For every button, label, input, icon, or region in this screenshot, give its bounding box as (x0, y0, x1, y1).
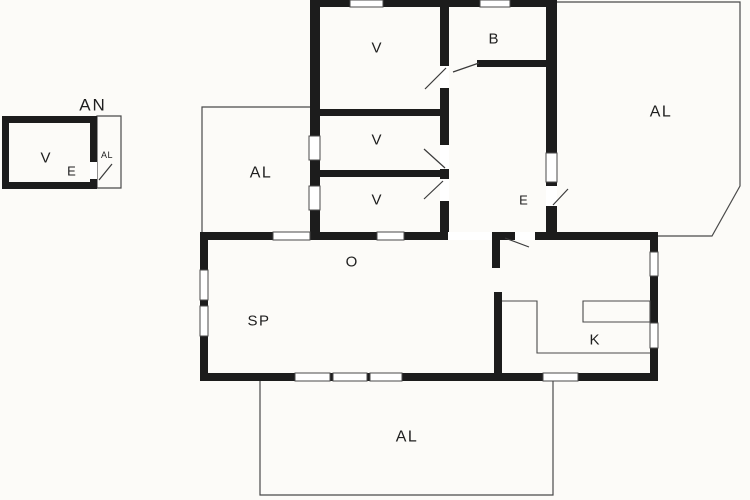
wall-segment (310, 170, 449, 177)
wall-segment (310, 0, 557, 7)
wall-segment (440, 0, 449, 240)
wall-segment (310, 109, 449, 116)
window (350, 0, 383, 7)
window (309, 186, 320, 210)
room-label-bathroom: B (488, 31, 499, 48)
window (273, 232, 310, 240)
window (650, 323, 658, 348)
door-gap (515, 232, 535, 240)
window (295, 373, 330, 381)
window (309, 136, 320, 160)
room-label-living-room-o: O (346, 254, 359, 271)
room-label-annex-entry-e: E (67, 164, 77, 179)
window (370, 373, 402, 381)
room-label-terrace-south: AL (396, 429, 419, 446)
window (200, 270, 208, 300)
floor-plan-page: ANVEALVBALVVALEOSPKAL (0, 0, 750, 500)
room-label-bedroom-3: V (371, 192, 382, 209)
window (480, 0, 510, 7)
room-label-entrance: E (519, 193, 529, 208)
plan-background (0, 0, 750, 500)
wall-segment (494, 292, 502, 377)
window (333, 373, 367, 381)
wall-segment (2, 116, 97, 123)
room-label-annex-title: AN (79, 96, 107, 115)
window (546, 153, 557, 182)
wall-segment (2, 182, 97, 189)
room-label-annex-room-v: V (40, 150, 51, 167)
window (650, 252, 658, 276)
floor-plan-canvas: ANVEALVBALVVALEOSPKAL (0, 0, 750, 500)
window (543, 373, 578, 381)
room-label-bedroom-2: V (371, 132, 382, 149)
room-label-terrace-west: AL (250, 165, 273, 182)
window (200, 306, 208, 336)
room-label-annex-terrace: AL (101, 150, 113, 160)
wall-segment (2, 116, 9, 189)
wall-segment (200, 373, 658, 381)
room-label-dining-sp: SP (247, 313, 270, 330)
wall-segment (200, 232, 658, 240)
room-label-terrace-ne: AL (650, 104, 673, 121)
room-label-kitchen: K (589, 332, 600, 349)
room-label-bedroom-1: V (371, 40, 382, 57)
door-gap (448, 232, 492, 240)
door-gap (90, 162, 97, 179)
window (377, 232, 404, 240)
wall-segment (492, 235, 500, 268)
wall-segment (477, 60, 557, 67)
